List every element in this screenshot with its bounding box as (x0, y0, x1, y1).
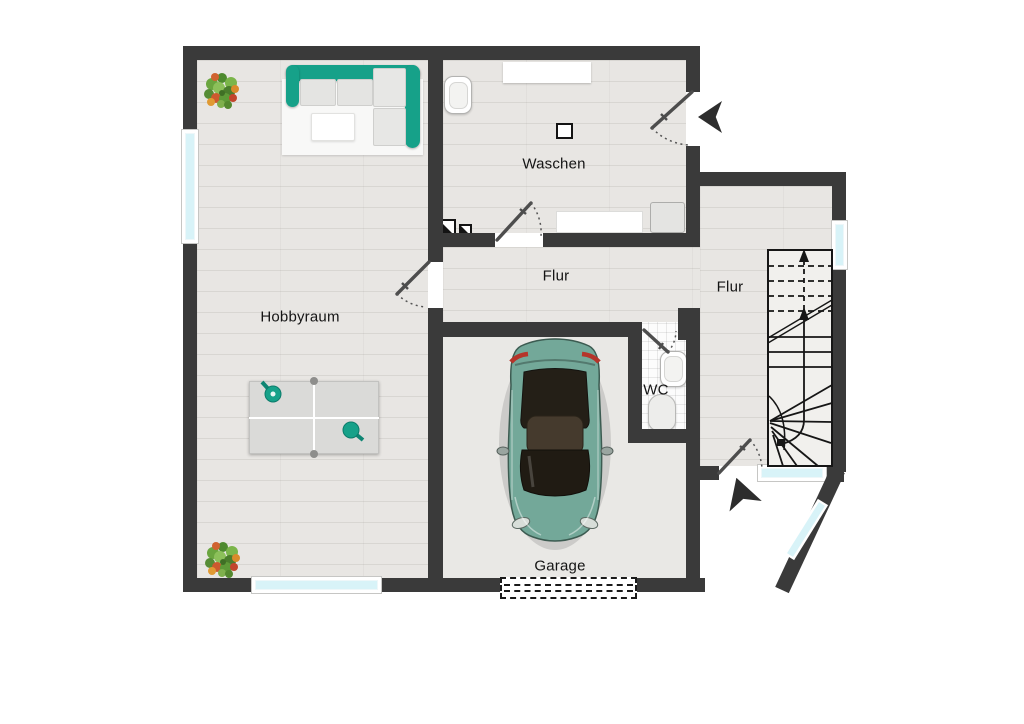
door-wc (644, 330, 676, 352)
door-hobbyraum (397, 262, 429, 307)
wall-diagonal (782, 470, 838, 590)
room-label-waschen: Waschen (522, 156, 585, 173)
door-waschen-flur (497, 203, 541, 240)
door-entrance-waschen (652, 92, 692, 145)
staircase-icon (768, 249, 832, 466)
room-label-flur-treppe: Flur (717, 279, 744, 296)
ping-pong-paddle-icon (343, 422, 363, 440)
room-label-flur: Flur (543, 268, 570, 285)
door-entrance-annex (719, 440, 762, 473)
floor-plan-canvas: Hobbyraum Waschen Flur Flur WC Garage (0, 0, 1024, 724)
room-label-wc: WC (643, 382, 668, 399)
car-icon (497, 338, 613, 550)
plan-overlay (0, 0, 1024, 724)
plant-icon (204, 73, 239, 109)
ping-pong-paddle-icon (262, 382, 281, 402)
plant-icon (205, 542, 240, 578)
room-label-garage: Garage (534, 558, 585, 575)
room-label-hobbyraum: Hobbyraum (260, 309, 339, 326)
